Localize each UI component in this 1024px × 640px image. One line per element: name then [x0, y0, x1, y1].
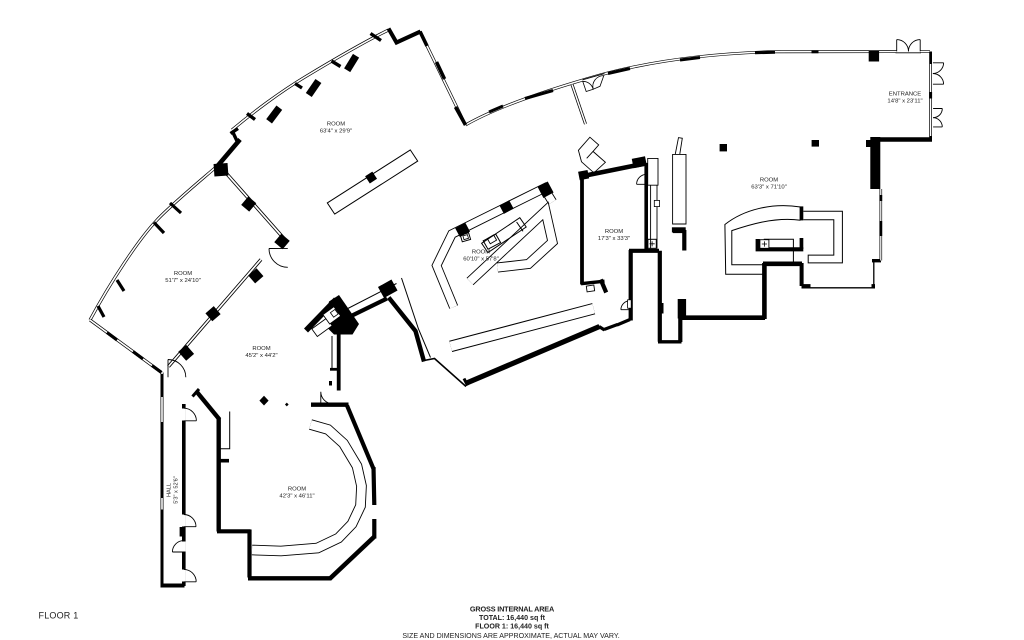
svg-text:ROOM: ROOM	[174, 271, 192, 277]
svg-text:ROOM: ROOM	[760, 178, 778, 184]
svg-text:60'10" x 57'8": 60'10" x 57'8"	[463, 257, 499, 263]
svg-text:ROOM: ROOM	[327, 122, 345, 128]
svg-text:HALL: HALL	[167, 483, 173, 497]
svg-text:63'4" x 29'9": 63'4" x 29'9"	[320, 129, 352, 135]
svg-text:ROOM: ROOM	[605, 229, 623, 235]
svg-text:GROSS INTERNAL AREA: GROSS INTERNAL AREA	[470, 605, 555, 614]
svg-text:TOTAL: 16,440 sq ft: TOTAL: 16,440 sq ft	[479, 614, 546, 622]
svg-text:14'8" x 23'11": 14'8" x 23'11"	[887, 99, 922, 105]
svg-text:45'2" x 44'2": 45'2" x 44'2"	[245, 353, 277, 359]
svg-text:51'7" x 24'10": 51'7" x 24'10"	[165, 278, 201, 284]
svg-text:FLOOR 1: 16,440 sq ft: FLOOR 1: 16,440 sq ft	[475, 623, 549, 631]
svg-text:ROOM: ROOM	[288, 487, 306, 493]
svg-text:ROOM: ROOM	[252, 346, 270, 352]
svg-text:63'3" x 71'10": 63'3" x 71'10"	[751, 185, 787, 191]
svg-text:5'3" x 52'6": 5'3" x 52'6"	[174, 476, 180, 504]
svg-text:ROOM: ROOM	[472, 250, 490, 256]
svg-text:FLOOR 1: FLOOR 1	[39, 611, 79, 621]
svg-text:17'3" x 33'3": 17'3" x 33'3"	[598, 236, 630, 242]
svg-text:ENTRANCE: ENTRANCE	[889, 92, 921, 98]
svg-text:42'3" x 46'11": 42'3" x 46'11"	[279, 494, 314, 500]
svg-text:SIZE AND DIMENSIONS ARE APPROX: SIZE AND DIMENSIONS ARE APPROXIMATE, ACT…	[402, 632, 619, 640]
